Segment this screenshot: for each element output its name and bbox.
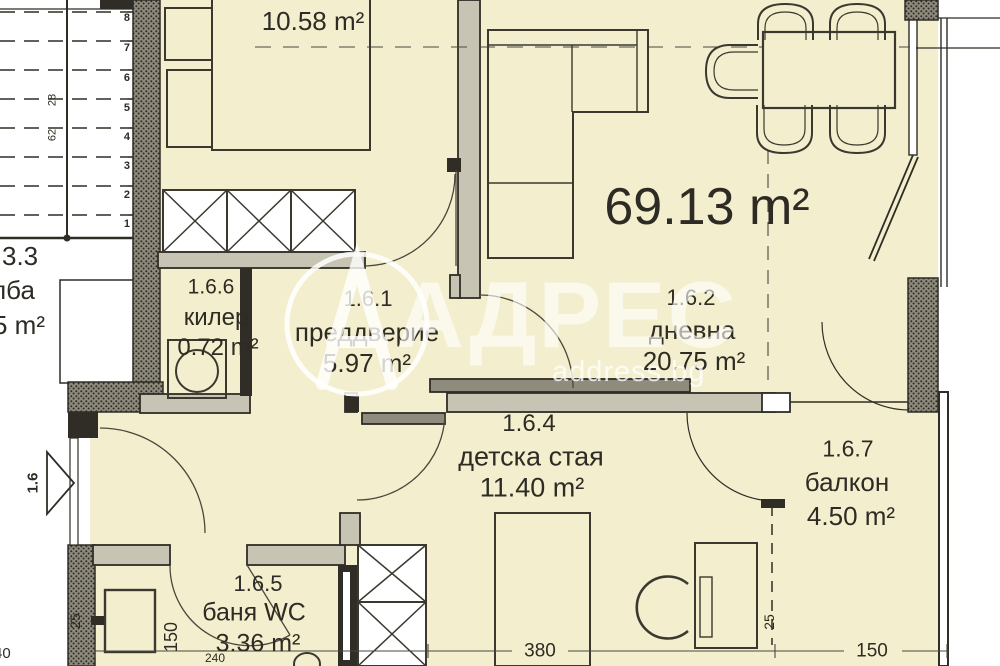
stair-step-number: 3 [110,161,130,172]
bathroom-name: баня WC [202,601,306,626]
living-area: 20.75 m² [643,348,746,374]
bedroom-area-label: 10.58 m² [262,8,365,34]
stair-step-number: 4 [110,132,130,143]
stair-dim-a: 28 [48,94,59,106]
entrance-label: 1.6 [26,473,41,494]
children-code: 1.6.4 [502,412,555,436]
floorplan-drawing [0,0,1000,666]
stair-step-number: 2 [110,190,130,201]
vestibule-area: 5.97 m² [323,350,411,376]
dim-bath-width: 240 [205,652,225,664]
dim-children-width: 380 [520,642,560,661]
children-name: детска стая [458,444,604,471]
vestibule-name: преддверие [295,319,439,345]
stairwell-steps [0,0,136,242]
dim-entry-wall: 25 [68,613,82,629]
stairwell-code: 3.3 [2,243,38,269]
dim-balcony-inset: 25 [762,614,776,630]
balcony-code: 1.6.7 [822,438,873,461]
closet-code: 1.6.6 [188,277,235,298]
living-code: 1.6.2 [667,287,716,309]
balcony-area: 4.50 m² [807,503,895,529]
stairwell-area-fragment: 5 m² [0,312,45,338]
stair-step-number: 7 [110,43,130,54]
closet-area: 0.72 m² [177,336,258,360]
vestibule-code: 1.6.1 [344,288,393,310]
total-area-label: 69.13 m² [604,181,809,233]
bathroom-code: 1.6.5 [234,573,283,595]
living-name: дневна [649,317,736,343]
stair-step-number: 1 [110,219,130,230]
stair-step-number: 8 [110,13,130,24]
stair-step-number: 5 [110,103,130,114]
stairwell-name-fragment: лба [0,277,35,303]
bathroom-area: 3.36 m² [216,632,301,657]
floor-plan: 10.58 m² 69.13 m² 1.6.1 преддверие 5.97 … [0,0,1000,666]
entrance-wall [47,438,78,545]
balcony-name: балкон [805,469,889,495]
dim-bath-door: 150 [162,622,180,652]
dim-balcony-width: 150 [852,642,892,661]
dim-edge-fragment: 40 [0,646,11,661]
children-area: 11.40 m² [480,475,585,502]
wardrobe-icon [358,545,426,666]
wardrobe-icon [163,190,355,252]
closet-name: килер [184,306,249,330]
stair-step-number: 6 [110,73,130,84]
stair-dim-b: 62 [48,129,59,141]
